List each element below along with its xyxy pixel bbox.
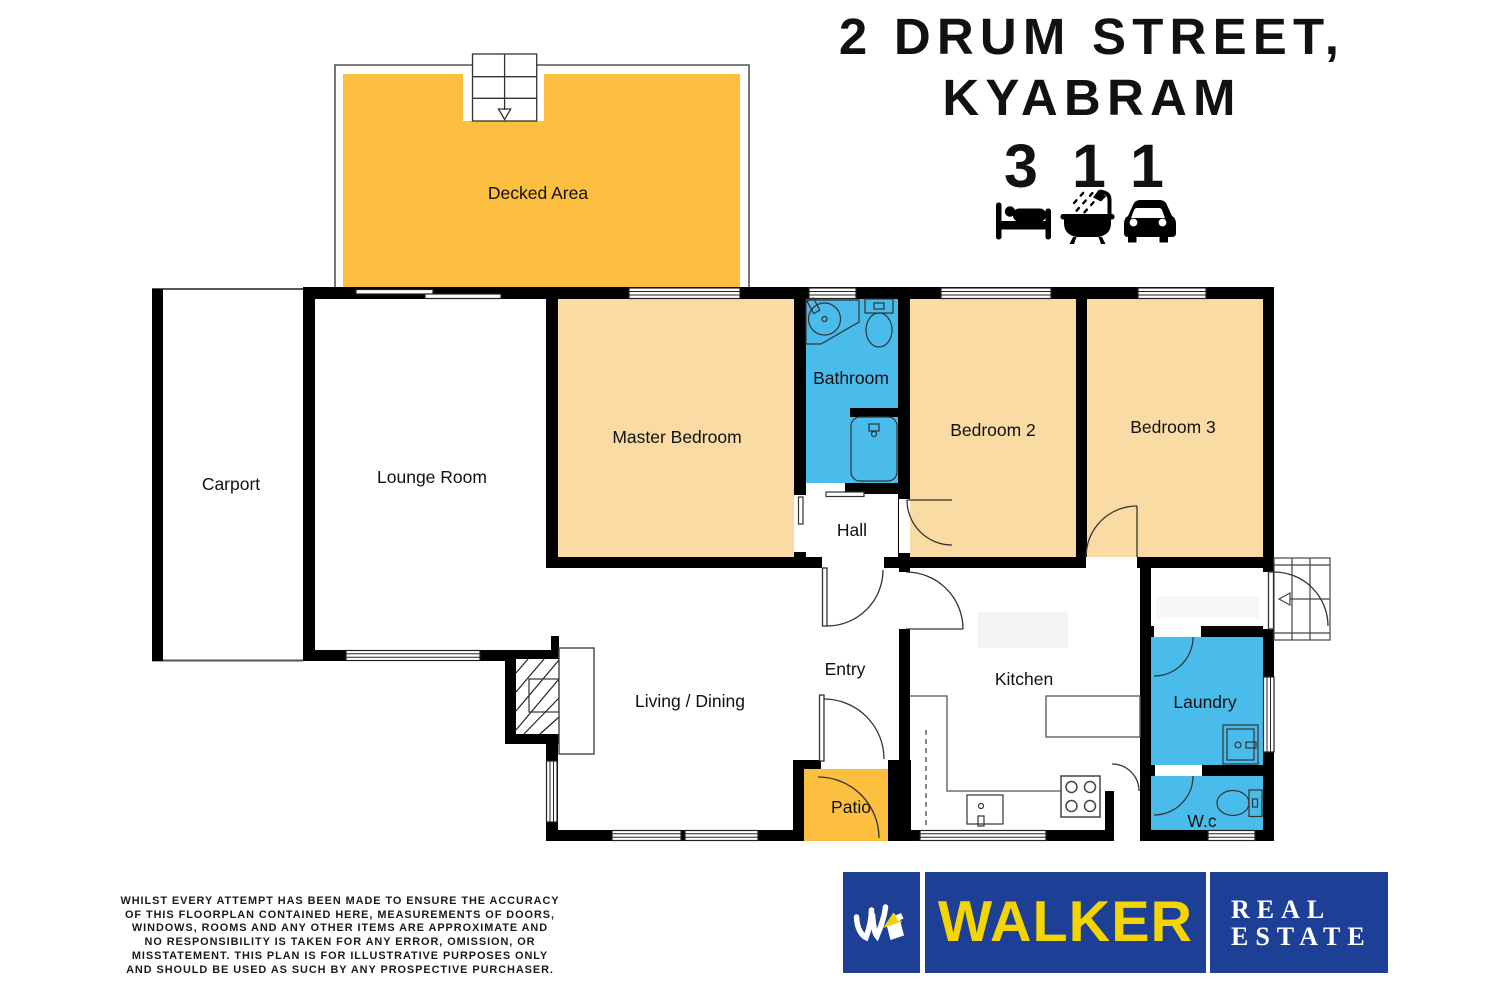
svg-text:Hall: Hall xyxy=(837,520,867,540)
svg-text:Laundry: Laundry xyxy=(1173,692,1236,712)
svg-text:Bedroom 2: Bedroom 2 xyxy=(950,420,1036,440)
svg-text:Entry: Entry xyxy=(825,659,866,679)
svg-text:Bedroom 3: Bedroom 3 xyxy=(1130,417,1216,437)
svg-text:Kitchen: Kitchen xyxy=(995,669,1053,689)
svg-text:Lounge Room: Lounge Room xyxy=(377,467,487,487)
svg-text:W.c: W.c xyxy=(1187,811,1216,831)
svg-text:Decked Area: Decked Area xyxy=(488,183,588,203)
svg-text:Master Bedroom: Master Bedroom xyxy=(612,427,741,447)
svg-text:Living / Dining: Living / Dining xyxy=(635,691,745,711)
svg-text:Carport: Carport xyxy=(202,474,260,494)
svg-text:Bathroom: Bathroom xyxy=(813,368,889,388)
